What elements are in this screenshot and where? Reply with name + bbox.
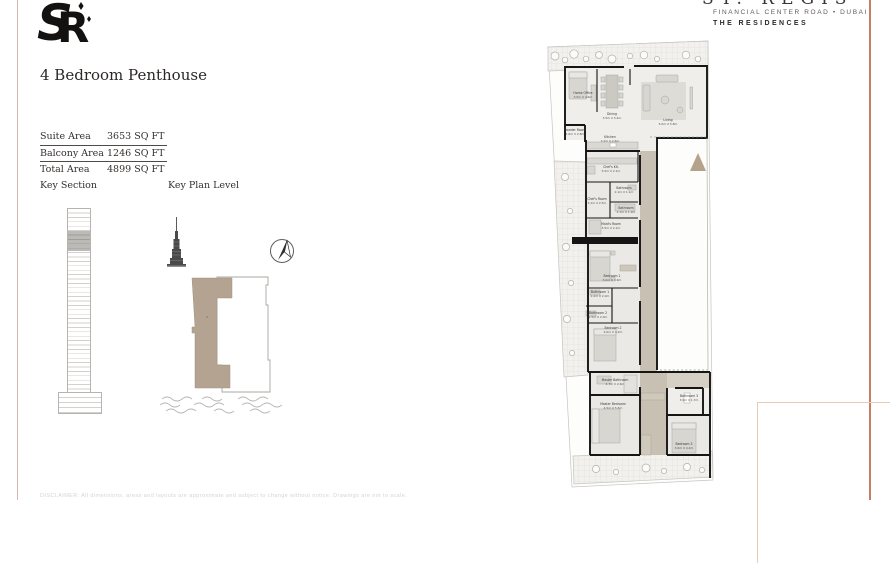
svg-text:5.0m X 3.9m: 5.0m X 3.9m (603, 278, 622, 282)
area-label: Suite Area (40, 131, 107, 142)
area-value: 4899 SQ FT (107, 164, 167, 175)
tower-level-highlight (68, 231, 90, 251)
keyplan-footprint (192, 277, 270, 392)
svg-text:3.5m X 4.6m: 3.5m X 4.6m (574, 95, 593, 99)
svg-text:5.5m X 2.1m: 5.5m X 2.1m (602, 169, 621, 173)
monogram-letter-r: R (57, 3, 89, 50)
svg-text:5.5m X 2.1m: 5.5m X 2.1m (602, 226, 621, 230)
svg-text:3.2m X 2.6m: 3.2m X 2.6m (601, 139, 620, 143)
svg-text:3.9m X 1.7m: 3.9m X 1.7m (680, 398, 699, 402)
area-table: Suite Area 3653 SQ FT Balcony Area 1246 … (40, 129, 167, 178)
floorplan-drawing: Home Office 3.5m X 4.6m Dining 3.5m X 5.… (540, 25, 890, 495)
svg-text:3.5m X 5.4m: 3.5m X 5.4m (603, 116, 622, 120)
svg-text:2.2m X 2.0m: 2.2m X 2.0m (591, 294, 610, 298)
area-row-balcony: Balcony Area 1246 SQ FT (40, 146, 167, 163)
structural-wall (572, 237, 638, 244)
burj-khalifa-icon (167, 217, 186, 267)
svg-text:2.1m X 1.9m: 2.1m X 1.9m (617, 210, 636, 214)
disclaimer-text: DISCLAIMER: All dimensions, areas and la… (40, 493, 407, 499)
svg-text:2.5m X 2.0m: 2.5m X 2.0m (589, 315, 608, 319)
north-arrow-icon (271, 240, 294, 263)
brand-wordmark-clip: ST. REGIS (700, 0, 875, 8)
key-section-label: Key Section (40, 180, 97, 191)
brand-wordmark: ST. REGIS (702, 0, 853, 8)
svg-text:4.7m X 2.6m: 4.7m X 2.6m (606, 382, 625, 386)
st-regis-monogram-icon: S R (36, 0, 100, 50)
area-value: 1246 SQ FT (107, 148, 167, 159)
key-plan-graphic (150, 215, 310, 415)
floorplan-sheet: S R ST. REGIS FINANCIAL CENTER ROAD • DU… (0, 0, 890, 500)
svg-text:4.0m X 4.2m: 4.0m X 4.2m (604, 330, 623, 334)
water-waves-icon (160, 397, 282, 413)
area-row-total: Total Area 4899 SQ FT (40, 162, 167, 178)
svg-text:3.1m X 2.5m: 3.1m X 2.5m (588, 201, 607, 205)
tower-podium (58, 392, 102, 414)
area-label: Balcony Area (40, 148, 107, 159)
brand-address: FINANCIAL CENTER ROAD • DUBAI (713, 9, 868, 16)
corridor-floor (640, 151, 657, 372)
svg-text:1.6m X 2.8m: 1.6m X 2.8m (566, 132, 585, 136)
area-row-suite: Suite Area 3653 SQ FT (40, 129, 167, 146)
svg-text:4.5m X 5.5m: 4.5m X 5.5m (604, 406, 623, 410)
svg-text:5.0m X 5.8m: 5.0m X 5.8m (659, 122, 678, 126)
area-label: Total Area (40, 164, 107, 175)
key-section-tower (67, 208, 91, 394)
svg-text:2.1m X 1.1m: 2.1m X 1.1m (615, 190, 634, 194)
svg-text:3.6m X 4.2m: 3.6m X 4.2m (675, 446, 694, 450)
area-value: 3653 SQ FT (107, 131, 167, 142)
key-plan-level-label: Key Plan Level (168, 180, 239, 191)
page-title: 4 Bedroom Penthouse (40, 66, 207, 84)
page-border-left (17, 0, 18, 500)
